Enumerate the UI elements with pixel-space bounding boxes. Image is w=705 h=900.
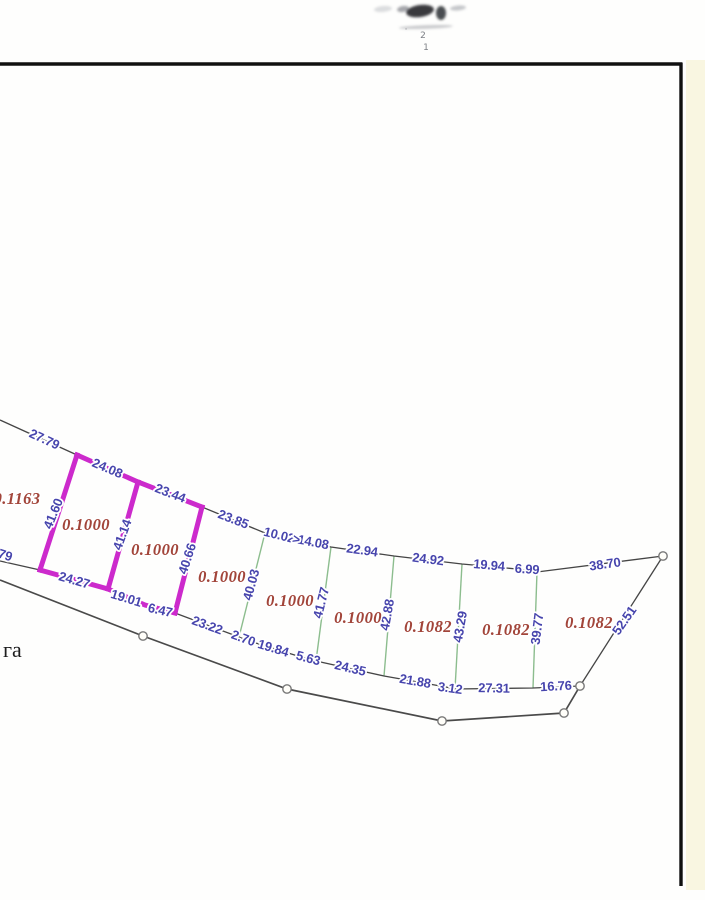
dimension-label: 14.08 — [296, 532, 330, 553]
dimension-label: 39.77 — [528, 612, 547, 645]
parcel-area-label: 0.1000 — [266, 591, 314, 610]
dimension-label: 24.35 — [333, 657, 367, 679]
dimension-label: 23.44 — [153, 480, 189, 506]
dimension-label: 43.29 — [450, 610, 470, 644]
dimension-label: 3.12 — [437, 679, 463, 697]
stamp-ink-blob — [405, 3, 434, 19]
dimension-label: 23.22 — [190, 613, 225, 638]
parcel-area-label: 0.1082 — [404, 617, 452, 636]
dimension-label: 19.01 — [109, 586, 144, 610]
dimension-label: 21.88 — [398, 671, 432, 691]
survey-point-marker — [560, 709, 568, 717]
sheet-frame-border — [0, 63, 682, 887]
parcel-area-label: 0.1163 — [0, 489, 40, 508]
scanned-survey-page: 27.7924.0823.4423.8510.0214.0822.9424.92… — [0, 0, 705, 900]
dimension-label: 24.27 — [57, 568, 91, 591]
dimension-label: 79 — [0, 546, 14, 565]
dimension-label: 2.70 — [229, 627, 257, 649]
stamp-ink-blob — [436, 6, 446, 20]
stamp-faint-mark: · — [405, 25, 408, 35]
parcel-area-label: 0.1082 — [565, 613, 613, 632]
edge-note-text: га — [3, 637, 22, 662]
parcel-area-label: 0.1000 — [131, 540, 179, 559]
stamp-ink-blob — [450, 5, 466, 11]
dimension-label: 19.84 — [256, 636, 291, 660]
north-boundary — [0, 420, 663, 572]
dimension-label: 27.79 — [27, 426, 62, 453]
survey-point-marker — [139, 632, 147, 640]
parcel-area-label: 0.1082 — [482, 620, 530, 639]
stamp-faint-marks: 21· — [405, 25, 429, 53]
survey-point-marker — [283, 685, 291, 693]
survey-point-marker — [576, 682, 584, 690]
dimension-label: 24.08 — [90, 455, 125, 481]
parcel-area-label: 0.1000 — [198, 567, 246, 586]
parcel-area-label: 0.1000 — [62, 515, 110, 534]
dimension-label: 6.99 — [514, 561, 540, 578]
page-edge-tint — [686, 60, 705, 890]
survey-point-marker — [438, 717, 446, 725]
dimension-label: 6.47 — [147, 600, 174, 620]
dimension-label: 27.31 — [478, 680, 510, 696]
dimension-label: 38.70 — [588, 554, 621, 573]
survey-point-marker — [659, 552, 667, 560]
stamp-faint-mark: 1 — [423, 43, 429, 53]
dimension-label: 52.51 — [609, 603, 639, 637]
stamp-ink-blob — [374, 5, 392, 13]
stamp-faint-mark: 2 — [420, 31, 426, 41]
dimension-label: 22.94 — [345, 540, 379, 559]
dimension-label: 24.92 — [412, 550, 445, 569]
stamp-smudge — [374, 3, 466, 30]
dimension-label: 23.85 — [216, 506, 251, 531]
cadastral-parcel-map: 27.7924.0823.4423.8510.0214.0822.9424.92… — [0, 0, 705, 900]
dimension-labels: 27.7924.0823.4423.8510.0214.0822.9424.92… — [0, 426, 639, 698]
dimension-label: 19.94 — [473, 556, 507, 574]
parcel-area-label: 0.1000 — [334, 608, 382, 627]
dimension-label: 16.76 — [540, 678, 572, 695]
